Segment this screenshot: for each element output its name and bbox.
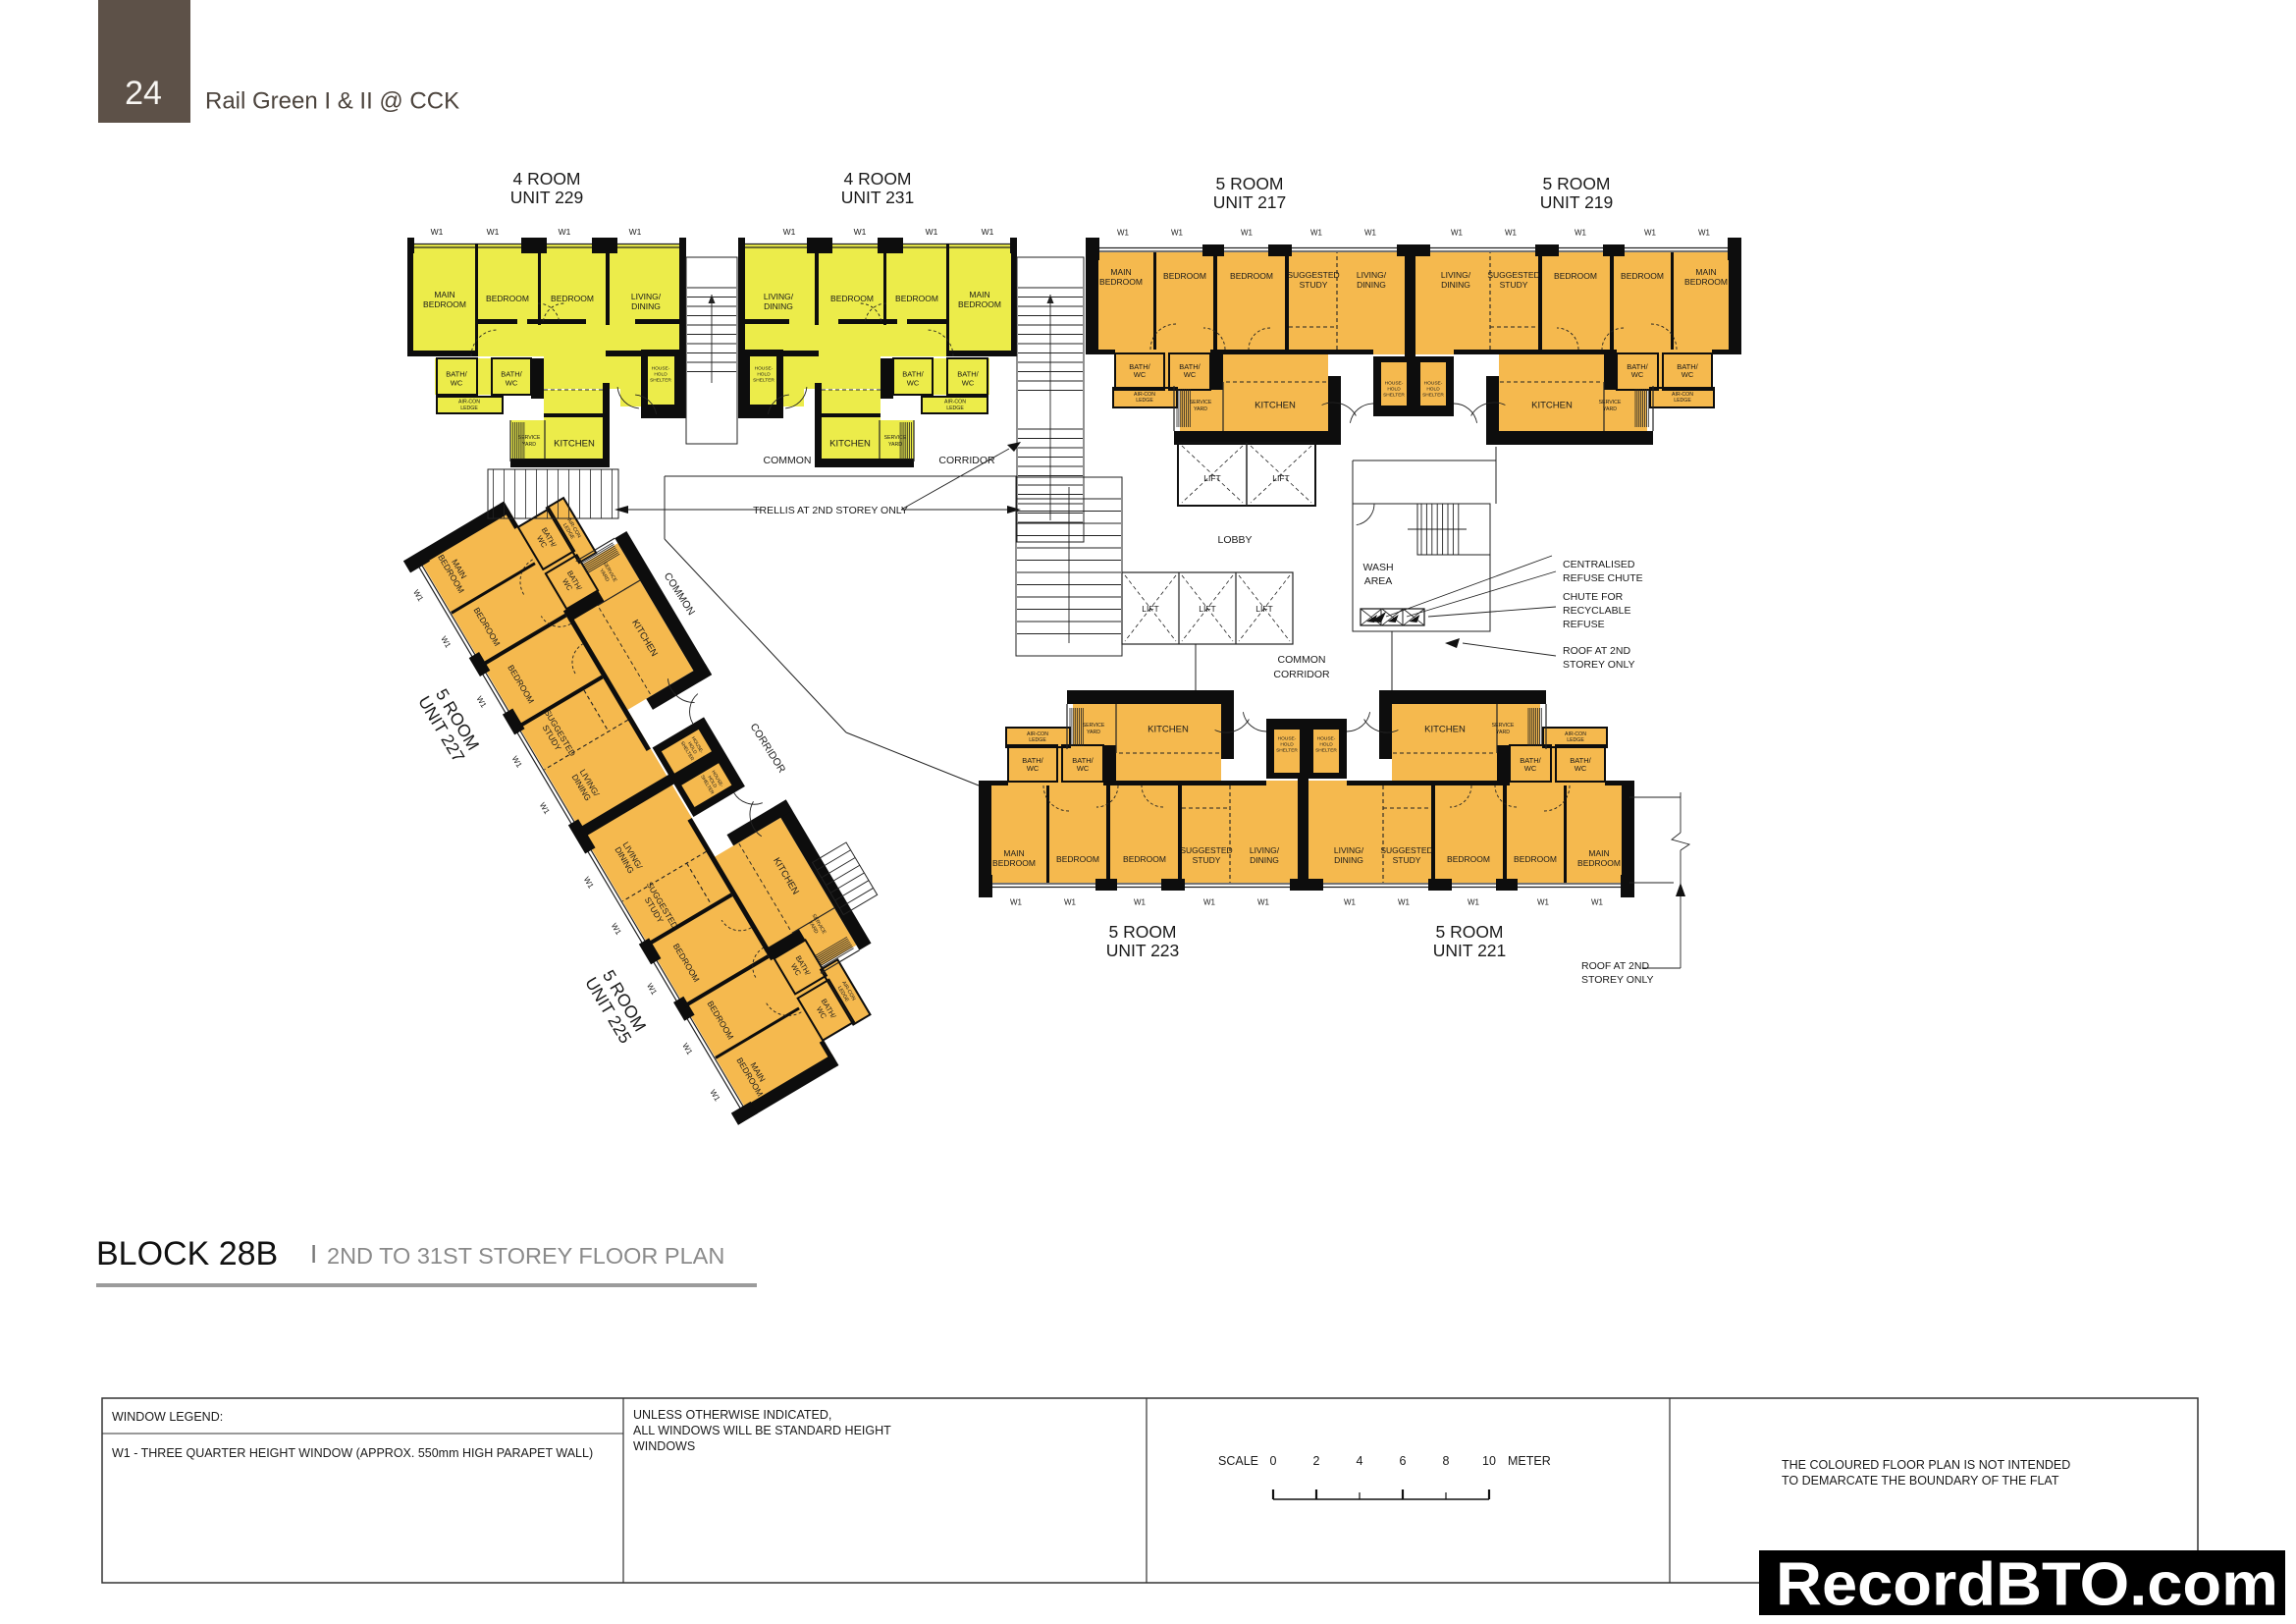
- svg-text:5 ROOM: 5 ROOM: [1542, 174, 1610, 193]
- svg-text:BEDROOM: BEDROOM: [1554, 271, 1597, 281]
- svg-text:BATH/: BATH/: [501, 370, 522, 379]
- svg-text:WC: WC: [451, 379, 463, 388]
- svg-text:HOLD: HOLD: [1387, 387, 1401, 393]
- svg-text:SHELTER: SHELTER: [753, 378, 774, 384]
- svg-text:SCALE: SCALE: [1218, 1454, 1258, 1468]
- svg-text:MAIN: MAIN: [969, 290, 989, 299]
- svg-text:W1: W1: [1203, 898, 1216, 907]
- svg-text:W1: W1: [1451, 229, 1464, 238]
- svg-text:HOUSE-: HOUSE-: [652, 366, 670, 372]
- svg-text:KITCHEN: KITCHEN: [1531, 401, 1573, 411]
- svg-text:CORRIDOR: CORRIDOR: [938, 455, 995, 466]
- svg-text:STOREY ONLY: STOREY ONLY: [1563, 659, 1635, 671]
- svg-text:YARD: YARD: [1087, 730, 1100, 735]
- svg-text:W1: W1: [1310, 229, 1323, 238]
- svg-text:0: 0: [1270, 1454, 1277, 1468]
- svg-text:LIVING/: LIVING/: [1334, 845, 1364, 855]
- svg-text:SERVICE: SERVICE: [518, 435, 541, 441]
- svg-text:6: 6: [1400, 1454, 1407, 1468]
- svg-text:WC: WC: [506, 379, 518, 388]
- svg-text:8: 8: [1443, 1454, 1450, 1468]
- svg-text:KITCHEN: KITCHEN: [1148, 725, 1189, 735]
- svg-text:BEDROOM: BEDROOM: [1684, 277, 1728, 287]
- svg-text:BATH/: BATH/: [957, 370, 979, 379]
- svg-text:DINING: DINING: [1441, 280, 1470, 290]
- svg-text:W1: W1: [1364, 229, 1377, 238]
- svg-text:LIFT: LIFT: [1255, 604, 1272, 614]
- svg-text:BEDROOM: BEDROOM: [551, 294, 594, 303]
- svg-text:W1: W1: [1698, 229, 1711, 238]
- svg-text:AIR-CON: AIR-CON: [1565, 731, 1586, 737]
- svg-text:ROOF AT 2ND: ROOF AT 2ND: [1581, 960, 1649, 972]
- svg-text:BEDROOM: BEDROOM: [992, 858, 1036, 868]
- svg-text:LIFT: LIFT: [1272, 473, 1289, 483]
- svg-text:I: I: [310, 1239, 317, 1269]
- svg-text:WASH: WASH: [1362, 562, 1393, 573]
- svg-text:YARD: YARD: [1603, 406, 1617, 412]
- svg-text:STUDY: STUDY: [1300, 280, 1328, 290]
- svg-text:WC: WC: [1631, 370, 1644, 379]
- svg-text:SERVICE: SERVICE: [1190, 400, 1212, 406]
- svg-text:HOLD: HOLD: [1280, 742, 1294, 748]
- svg-text:ALL WINDOWS WILL BE STANDARD H: ALL WINDOWS WILL BE STANDARD HEIGHT: [633, 1424, 891, 1437]
- svg-text:WC: WC: [1184, 370, 1197, 379]
- svg-text:HOUSE-: HOUSE-: [1317, 736, 1336, 742]
- svg-text:Rail Green I & II @ CCK: Rail Green I & II @ CCK: [205, 88, 459, 115]
- svg-text:W1: W1: [559, 227, 571, 237]
- svg-text:SHELTER: SHELTER: [1383, 393, 1405, 399]
- svg-text:SUGGESTED: SUGGESTED: [1287, 270, 1339, 280]
- svg-text:WC: WC: [907, 379, 920, 388]
- svg-text:YARD: YARD: [1496, 730, 1510, 735]
- svg-text:2: 2: [1313, 1454, 1320, 1468]
- svg-text:W1: W1: [1398, 898, 1411, 907]
- svg-text:UNIT 221: UNIT 221: [1433, 941, 1507, 960]
- svg-text:BEDROOM: BEDROOM: [1099, 277, 1143, 287]
- svg-text:CORRIDOR: CORRIDOR: [1273, 669, 1330, 680]
- svg-text:BLOCK 28B: BLOCK 28B: [96, 1235, 278, 1272]
- svg-text:BATH/: BATH/: [446, 370, 467, 379]
- svg-text:SUGGESTED: SUGGESTED: [1487, 270, 1539, 280]
- svg-text:24: 24: [125, 75, 162, 112]
- svg-text:W1: W1: [487, 227, 500, 237]
- svg-text:MAIN: MAIN: [1003, 848, 1024, 858]
- svg-text:LIVING/: LIVING/: [631, 292, 662, 301]
- svg-text:BEDROOM: BEDROOM: [1514, 854, 1557, 864]
- svg-text:W1: W1: [1468, 898, 1480, 907]
- svg-text:W1: W1: [1241, 229, 1254, 238]
- svg-text:REFUSE: REFUSE: [1563, 619, 1605, 630]
- svg-text:10: 10: [1482, 1454, 1496, 1468]
- svg-text:SHELTER: SHELTER: [1276, 748, 1298, 754]
- svg-text:LEDGE: LEDGE: [1136, 398, 1153, 404]
- svg-text:HOUSE-: HOUSE-: [1424, 381, 1443, 387]
- svg-text:MAIN: MAIN: [434, 290, 454, 299]
- svg-text:LIVING/: LIVING/: [1441, 270, 1471, 280]
- svg-text:LIVING/: LIVING/: [1357, 270, 1387, 280]
- svg-text:DINING: DINING: [1334, 855, 1363, 865]
- svg-text:HOLD: HOLD: [1319, 742, 1333, 748]
- svg-text:LEDGE: LEDGE: [460, 406, 478, 411]
- svg-text:W1: W1: [1171, 229, 1184, 238]
- svg-text:KITCHEN: KITCHEN: [1255, 401, 1296, 411]
- svg-text:CENTRALISED: CENTRALISED: [1563, 559, 1635, 570]
- svg-text:WC: WC: [1524, 764, 1537, 773]
- svg-text:RecordBTO.com: RecordBTO.com: [1776, 1551, 2278, 1619]
- svg-text:HOUSE-: HOUSE-: [1385, 381, 1404, 387]
- svg-text:AIR-CON: AIR-CON: [1134, 392, 1155, 398]
- svg-text:MAIN: MAIN: [1110, 267, 1131, 277]
- svg-text:BEDROOM: BEDROOM: [1163, 271, 1206, 281]
- svg-text:LIVING/: LIVING/: [1250, 845, 1280, 855]
- svg-text:HOLD: HOLD: [654, 372, 667, 378]
- svg-text:REFUSE CHUTE: REFUSE CHUTE: [1563, 572, 1643, 584]
- svg-text:5 ROOM: 5 ROOM: [1108, 922, 1176, 942]
- svg-text:COMMON: COMMON: [1278, 654, 1326, 666]
- svg-text:TRELLIS AT 2ND STOREY ONLY: TRELLIS AT 2ND STOREY ONLY: [753, 505, 908, 516]
- svg-text:W1: W1: [1344, 898, 1357, 907]
- svg-text:AIR-CON: AIR-CON: [944, 400, 966, 406]
- svg-text:UNIT 219: UNIT 219: [1540, 192, 1614, 212]
- svg-text:UNLESS OTHERWISE INDICATED,: UNLESS OTHERWISE INDICATED,: [633, 1408, 831, 1422]
- svg-text:LIFT: LIFT: [1142, 604, 1158, 614]
- svg-text:SERVICE: SERVICE: [1083, 723, 1105, 729]
- svg-text:5 ROOM: 5 ROOM: [1435, 922, 1503, 942]
- svg-text:SHELTER: SHELTER: [650, 378, 671, 384]
- svg-text:BATH/: BATH/: [902, 370, 924, 379]
- svg-text:DINING: DINING: [1357, 280, 1386, 290]
- svg-text:LEDGE: LEDGE: [1029, 737, 1046, 743]
- svg-text:MAIN: MAIN: [1695, 267, 1716, 277]
- svg-text:STUDY: STUDY: [1193, 855, 1221, 865]
- svg-text:AIR-CON: AIR-CON: [1672, 392, 1693, 398]
- svg-text:YARD: YARD: [522, 442, 536, 448]
- svg-text:AIR-CON: AIR-CON: [1027, 731, 1048, 737]
- svg-text:METER: METER: [1508, 1454, 1551, 1468]
- svg-text:KITCHEN: KITCHEN: [829, 439, 871, 450]
- svg-text:BEDROOM: BEDROOM: [1230, 271, 1273, 281]
- svg-text:W1: W1: [629, 227, 642, 237]
- svg-text:LIFT: LIFT: [1199, 604, 1215, 614]
- svg-text:WC: WC: [1077, 764, 1090, 773]
- svg-text:SERVICE: SERVICE: [884, 435, 907, 441]
- svg-text:LIVING/: LIVING/: [764, 292, 794, 301]
- svg-text:LEDGE: LEDGE: [1674, 398, 1691, 404]
- svg-text:W1: W1: [1591, 898, 1604, 907]
- svg-text:2ND TO 31ST STOREY FLOOR PLAN: 2ND TO 31ST STOREY FLOOR PLAN: [327, 1243, 724, 1269]
- svg-text:W1: W1: [1134, 898, 1147, 907]
- svg-text:HOLD: HOLD: [1426, 387, 1440, 393]
- svg-text:LEDGE: LEDGE: [946, 406, 964, 411]
- svg-text:MAIN: MAIN: [1588, 848, 1609, 858]
- svg-text:HOLD: HOLD: [757, 372, 771, 378]
- svg-text:SHELTER: SHELTER: [1422, 393, 1444, 399]
- svg-text:WC: WC: [1575, 764, 1587, 773]
- svg-text:BEDROOM: BEDROOM: [1577, 858, 1621, 868]
- svg-text:SUGGESTED: SUGGESTED: [1180, 845, 1232, 855]
- svg-text:W1: W1: [1537, 898, 1550, 907]
- svg-text:YARD: YARD: [888, 442, 902, 448]
- svg-text:RECYCLABLE: RECYCLABLE: [1563, 605, 1630, 617]
- svg-text:HOUSE-: HOUSE-: [1278, 736, 1297, 742]
- svg-text:W1: W1: [854, 227, 867, 237]
- svg-text:DINING: DINING: [1250, 855, 1279, 865]
- svg-text:HOUSE-: HOUSE-: [755, 366, 774, 372]
- svg-text:W1: W1: [1505, 229, 1518, 238]
- svg-text:SERVICE: SERVICE: [1599, 400, 1622, 406]
- svg-text:WC: WC: [1134, 370, 1147, 379]
- svg-text:BEDROOM: BEDROOM: [830, 294, 874, 303]
- svg-text:AIR-CON: AIR-CON: [458, 400, 480, 406]
- svg-text:WINDOWS: WINDOWS: [633, 1439, 695, 1453]
- svg-text:LIFT: LIFT: [1203, 473, 1220, 483]
- svg-text:DINING: DINING: [631, 301, 661, 311]
- svg-text:STUDY: STUDY: [1500, 280, 1528, 290]
- svg-text:BEDROOM: BEDROOM: [895, 294, 938, 303]
- svg-text:SERVICE: SERVICE: [1492, 723, 1515, 729]
- svg-text:4 ROOM: 4 ROOM: [512, 169, 580, 189]
- svg-text:SUGGESTED: SUGGESTED: [1380, 845, 1432, 855]
- svg-text:W1: W1: [1117, 229, 1130, 238]
- svg-text:W1: W1: [1257, 898, 1270, 907]
- svg-text:BEDROOM: BEDROOM: [1123, 854, 1166, 864]
- svg-text:LEDGE: LEDGE: [1567, 737, 1584, 743]
- svg-text:UNIT 229: UNIT 229: [510, 188, 584, 207]
- svg-text:WC: WC: [1027, 764, 1040, 773]
- svg-text:W1: W1: [982, 227, 994, 237]
- svg-text:AREA: AREA: [1364, 575, 1393, 587]
- svg-text:W1: W1: [1010, 898, 1023, 907]
- svg-text:W1 - THREE QUARTER HEIGHT WIND: W1 - THREE QUARTER HEIGHT WINDOW (APPROX…: [112, 1446, 593, 1460]
- svg-text:BEDROOM: BEDROOM: [958, 299, 1001, 309]
- svg-text:BEDROOM: BEDROOM: [423, 299, 466, 309]
- svg-text:5 ROOM: 5 ROOM: [1215, 174, 1283, 193]
- svg-text:COMMON: COMMON: [764, 455, 812, 466]
- svg-text:TO DEMARCATE THE BOUNDARY OF T: TO DEMARCATE THE BOUNDARY OF THE FLAT: [1782, 1474, 2059, 1488]
- svg-text:W1: W1: [1575, 229, 1587, 238]
- svg-text:W1: W1: [431, 227, 444, 237]
- svg-text:YARD: YARD: [1194, 406, 1207, 412]
- svg-text:THE COLOURED FLOOR PLAN IS NOT: THE COLOURED FLOOR PLAN IS NOT INTENDED: [1782, 1458, 2070, 1472]
- svg-text:UNIT 231: UNIT 231: [841, 188, 915, 207]
- svg-text:STOREY ONLY: STOREY ONLY: [1581, 974, 1654, 986]
- svg-text:BEDROOM: BEDROOM: [1056, 854, 1099, 864]
- svg-text:BEDROOM: BEDROOM: [1621, 271, 1664, 281]
- svg-text:LOBBY: LOBBY: [1217, 534, 1252, 546]
- svg-text:WC: WC: [1682, 370, 1694, 379]
- svg-text:BEDROOM: BEDROOM: [486, 294, 529, 303]
- svg-text:W1: W1: [1064, 898, 1077, 907]
- svg-text:UNIT 223: UNIT 223: [1106, 941, 1180, 960]
- svg-text:W1: W1: [1644, 229, 1657, 238]
- svg-text:SHELTER: SHELTER: [1315, 748, 1337, 754]
- svg-text:UNIT 217: UNIT 217: [1213, 192, 1287, 212]
- svg-text:4: 4: [1357, 1454, 1363, 1468]
- svg-text:WC: WC: [962, 379, 975, 388]
- svg-text:KITCHEN: KITCHEN: [1424, 725, 1466, 735]
- svg-text:CHUTE FOR: CHUTE FOR: [1563, 591, 1624, 603]
- svg-text:KITCHEN: KITCHEN: [554, 439, 595, 450]
- svg-text:ROOF AT 2ND: ROOF AT 2ND: [1563, 645, 1630, 657]
- svg-text:4 ROOM: 4 ROOM: [843, 169, 911, 189]
- svg-text:BEDROOM: BEDROOM: [1447, 854, 1490, 864]
- svg-text:DINING: DINING: [764, 301, 793, 311]
- svg-text:STUDY: STUDY: [1393, 855, 1421, 865]
- svg-text:W1: W1: [926, 227, 938, 237]
- svg-text:W1: W1: [783, 227, 796, 237]
- svg-text:WINDOW LEGEND:: WINDOW LEGEND:: [112, 1410, 223, 1424]
